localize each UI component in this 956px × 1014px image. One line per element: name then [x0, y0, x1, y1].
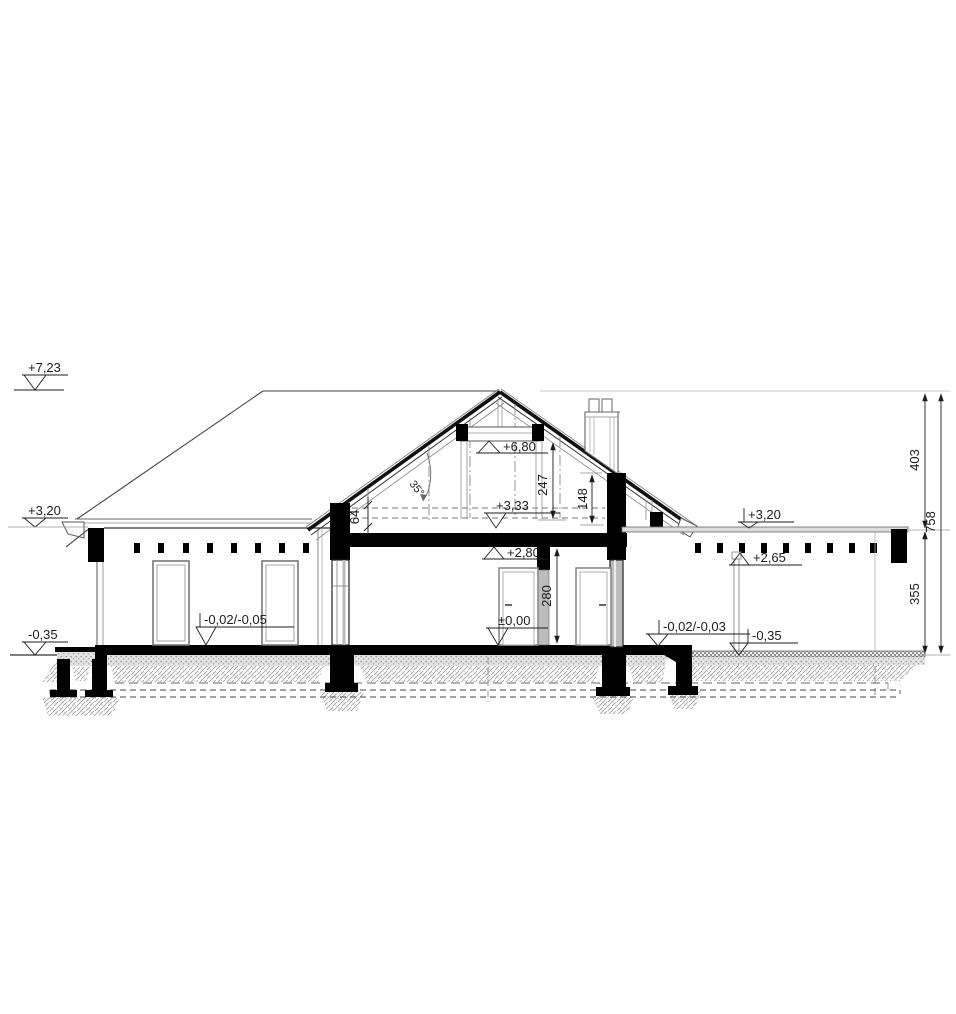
foundation-pier-2 [92, 655, 107, 690]
terrace-slab-left [55, 647, 95, 652]
svg-text:+7,23: +7,23 [28, 360, 61, 375]
foundation-ground [10, 645, 925, 716]
level-marker-ridge: +7,23 [14, 360, 68, 390]
collar-end-block-left [456, 424, 468, 441]
dim-label-758: 758 [923, 511, 938, 533]
svg-text:+2,80: +2,80 [507, 545, 540, 560]
window-left-1 [153, 561, 189, 645]
terrace-post [732, 552, 741, 652]
glazed-wall-right-cut [610, 560, 623, 647]
roof-section [306, 389, 697, 540]
svg-text:+3,20: +3,20 [748, 507, 781, 522]
terrace-beam-cut [891, 529, 907, 563]
terrace-ground-right [692, 665, 918, 681]
svg-text:+6,80: +6,80 [503, 439, 536, 454]
rafter-tails-right [695, 543, 877, 553]
level-marker-eave-right: +3,20 [738, 507, 794, 528]
floor-slab-cut [95, 645, 668, 655]
ceiling-slab-cut [330, 533, 627, 547]
svg-text:±0,00: ±0,00 [498, 613, 530, 628]
svg-text:+3,20: +3,20 [28, 503, 61, 518]
chimney-cap-1 [589, 399, 599, 412]
svg-text:+2,65: +2,65 [753, 550, 786, 565]
svg-text:+3,33: +3,33 [496, 498, 529, 513]
dim-label-280: 280 [539, 585, 554, 607]
foundation-pier-4 [602, 655, 626, 687]
window-left-2 [262, 561, 298, 645]
chimney [585, 399, 620, 474]
cross-section-page: 35° +7,23 +3,20 -0,35 -0,02/-0,05 [0, 0, 956, 1014]
foundation-pier-3 [330, 655, 354, 683]
ground-floor-section [332, 547, 623, 647]
eave-beam-cut-left [88, 528, 104, 562]
hip-edge-line [77, 391, 263, 519]
glazed-wall-left-cut [332, 560, 349, 645]
svg-text:-0,35: -0,35 [28, 627, 58, 642]
terrace-roof-slab [622, 527, 908, 532]
dim-label-355: 355 [907, 583, 922, 605]
dim-label-247: 247 [535, 474, 550, 496]
dim-label-64: 64 [347, 510, 362, 524]
svg-text:-0,02/-0,05: -0,02/-0,05 [204, 612, 267, 627]
level-marker-attic-floor: +3,33 [484, 498, 560, 528]
roof-angle-annotation: 35° [407, 453, 431, 501]
terrace-pavers-right [692, 651, 925, 657]
door-right [576, 568, 611, 645]
purlin-cut [650, 512, 663, 527]
dim-label-403: 403 [907, 449, 922, 471]
chimney-cap-2 [602, 399, 612, 412]
dim-label-148: 148 [575, 488, 590, 510]
level-marker-ceiling: +2,80 [482, 545, 548, 560]
level-markers: +7,23 +3,20 -0,35 -0,02/-0,05 +6,80 +3,3… [8, 360, 802, 655]
subfloor-insulation [95, 655, 668, 666]
section-drawing: 35° +7,23 +3,20 -0,35 -0,02/-0,05 [0, 0, 956, 1014]
svg-text:-0,35: -0,35 [752, 628, 782, 643]
svg-text:-0,02/-0,03: -0,02/-0,03 [663, 619, 726, 634]
rafter-tails-left [134, 543, 309, 553]
